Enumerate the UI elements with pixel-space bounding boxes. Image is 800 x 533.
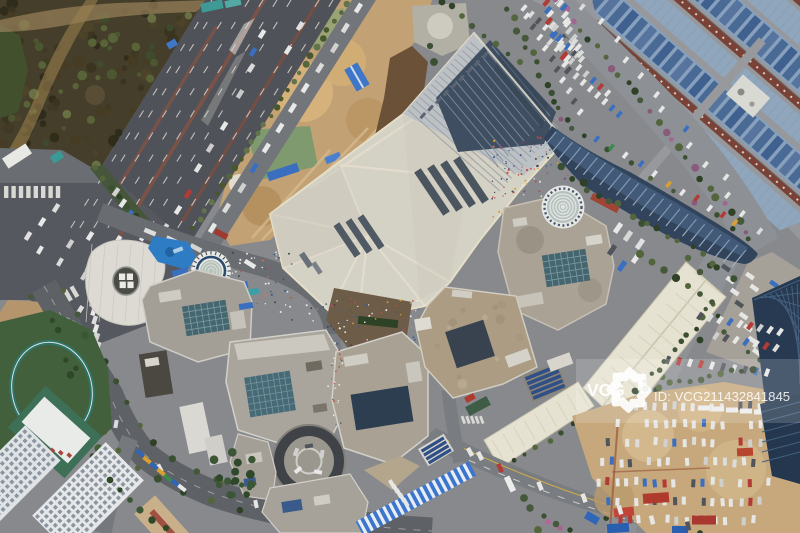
svg-text:ID: VCG211432841845: ID: VCG211432841845 (654, 389, 790, 404)
